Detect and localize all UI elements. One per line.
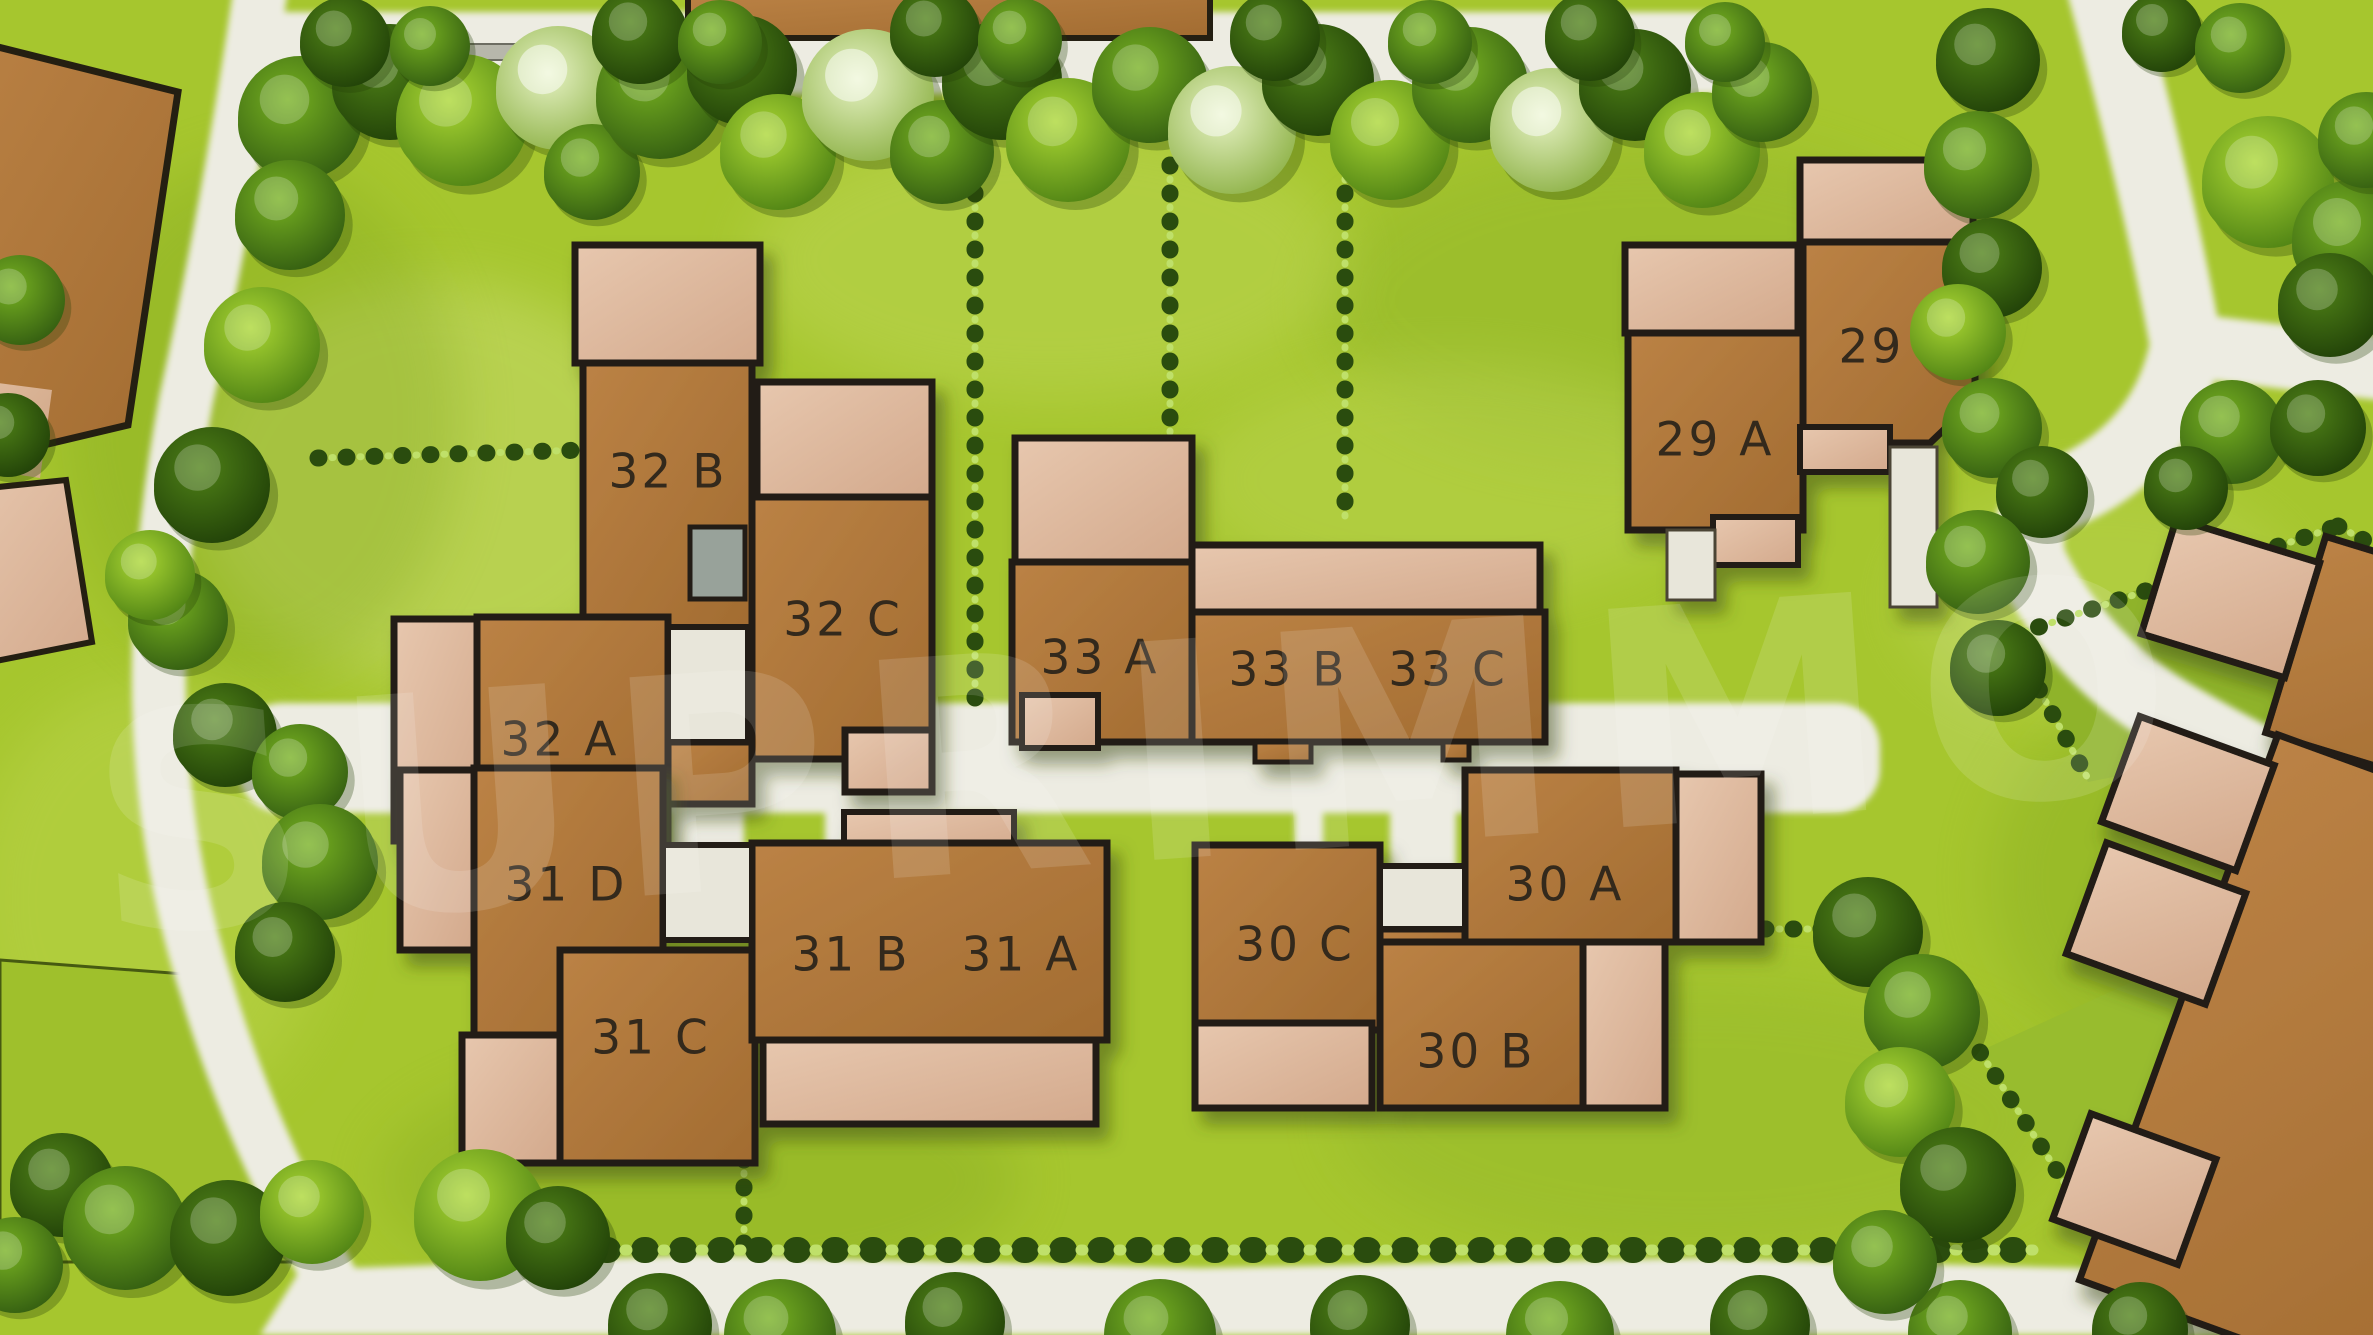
entrance-block <box>690 527 745 599</box>
building-label-29a: 29 A <box>1656 413 1775 468</box>
site-plan-page: 32 B 32 C 32 A 33 A 33 B 33 C 29 A 29 B … <box>0 0 2373 1335</box>
building-label-31c: 31 C <box>591 1011 711 1066</box>
building-label-32b: 32 B <box>609 445 728 500</box>
site-plan-map: 32 B 32 C 32 A 33 A 33 B 33 C 29 A 29 B … <box>0 0 2373 1335</box>
building-label-30b: 30 B <box>1417 1025 1536 1080</box>
building-label-30c: 30 C <box>1235 918 1355 973</box>
